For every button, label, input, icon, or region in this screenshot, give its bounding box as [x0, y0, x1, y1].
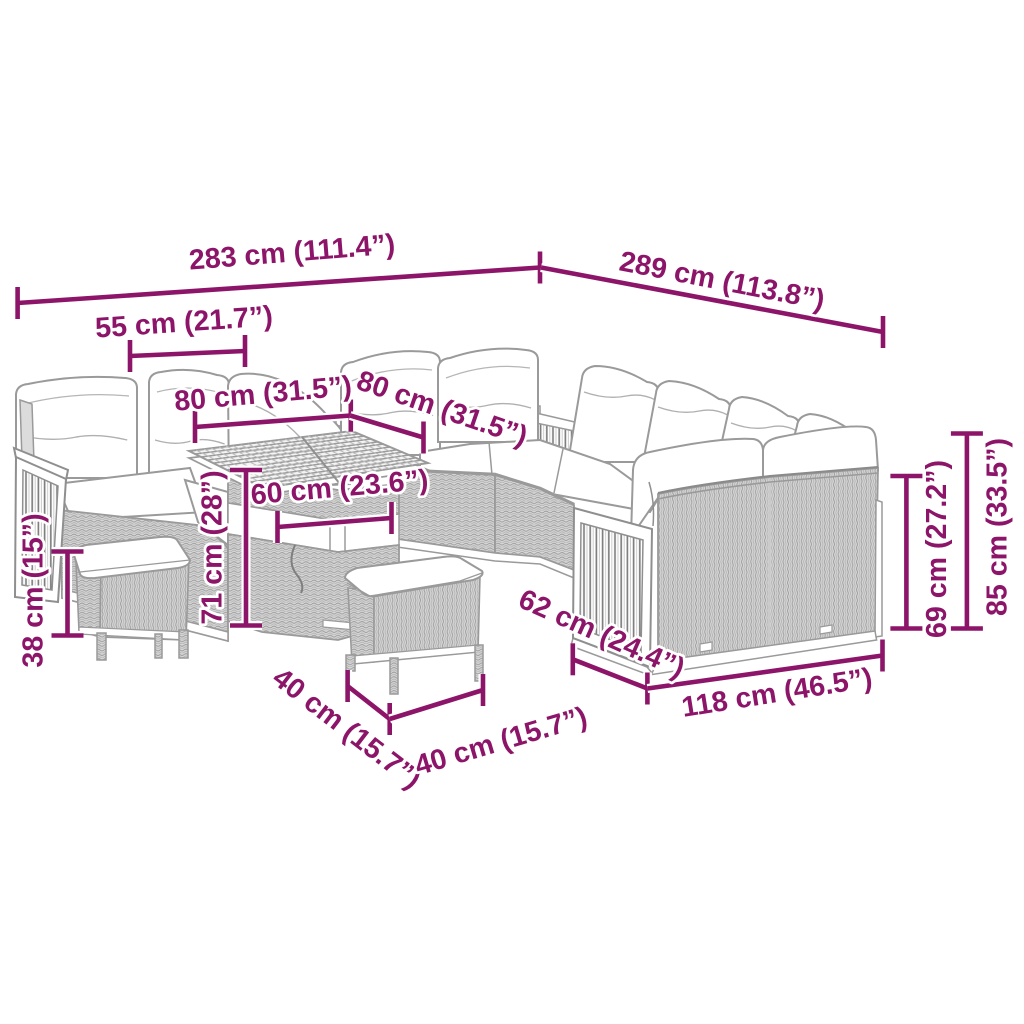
svg-text:85 cm (33.5”): 85 cm (33.5”)	[982, 438, 1014, 616]
svg-text:71 cm (28”): 71 cm (28”)	[197, 470, 229, 624]
svg-text:69 cm (27.2”): 69 cm (27.2”)	[921, 460, 953, 638]
svg-text:38 cm (15”): 38 cm (15”)	[18, 513, 50, 667]
